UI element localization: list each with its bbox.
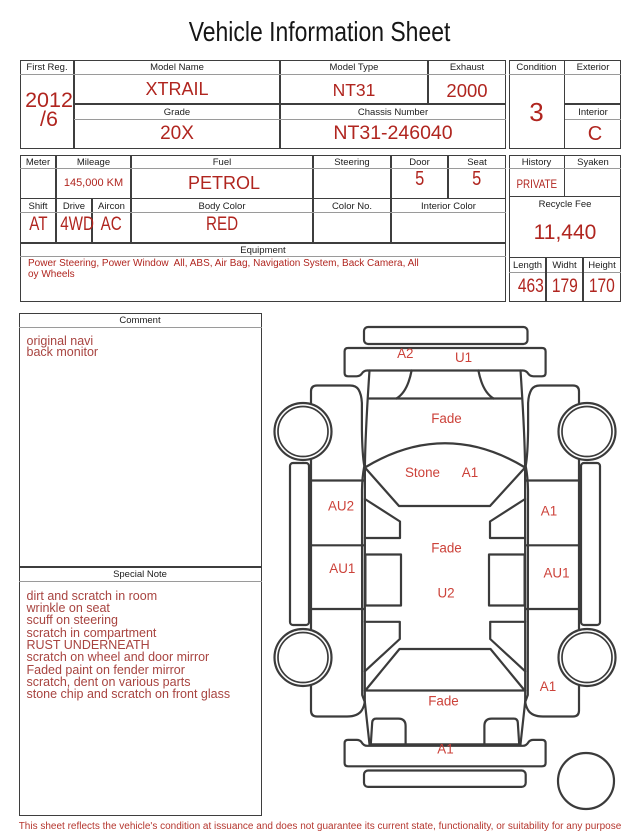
svg-text:Fade: Fade (431, 411, 462, 426)
svg-text:A1: A1 (437, 742, 453, 757)
svg-text:Stone: Stone (405, 465, 440, 480)
svg-text:AU2: AU2 (328, 498, 354, 513)
svg-text:A2: A2 (397, 346, 413, 361)
svg-text:Fade: Fade (428, 694, 459, 709)
svg-text:AU1: AU1 (543, 565, 569, 580)
svg-text:A1: A1 (541, 504, 557, 519)
svg-text:A1: A1 (462, 465, 478, 480)
svg-text:Fade: Fade (431, 541, 462, 556)
svg-text:U2: U2 (437, 585, 454, 600)
svg-text:AU1: AU1 (329, 561, 355, 576)
svg-text:A1: A1 (540, 679, 556, 694)
svg-text:U1: U1 (455, 350, 472, 365)
